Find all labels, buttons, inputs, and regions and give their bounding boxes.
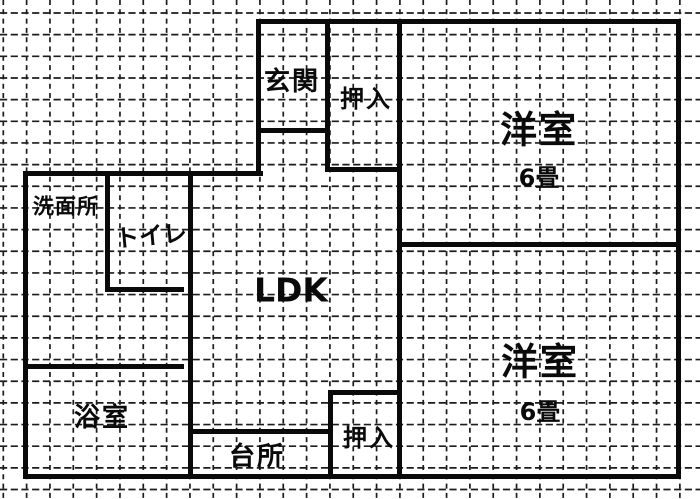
wall-oshiire-lower-top (328, 390, 402, 395)
room-label-kitchen: 台所 (229, 444, 285, 470)
wall-toilet-bottom (105, 287, 184, 292)
wall-oshiire-lower-left (328, 390, 333, 479)
room-label-genkan: 玄関 (264, 69, 320, 95)
wall-genkan-left (256, 19, 261, 176)
wall-genkan-oshiire-divider (325, 19, 330, 172)
wall-outer-bottom (23, 474, 681, 479)
wall-outer-right (676, 19, 681, 479)
wall-oshiire-upper-bottom (325, 167, 402, 172)
room-label-oshiire-lower: 押入 (343, 426, 395, 450)
wall-toilet-left (105, 171, 110, 292)
wall-western-rooms-divider (397, 242, 681, 247)
wall-genkan-bottom (256, 128, 330, 133)
wall-kitchen-top (188, 429, 333, 434)
wall-washroom-top (23, 171, 263, 176)
room-label-ldk: LDK (254, 274, 328, 307)
room-label-western-upper: 洋室 (500, 112, 578, 149)
wall-bathroom-top (23, 364, 184, 369)
room-size-western-upper: 6畳 (519, 166, 560, 190)
wall-outer-top (256, 19, 681, 24)
room-size-western-lower: 6畳 (520, 400, 561, 424)
room-label-bathroom: 浴室 (74, 405, 130, 431)
wall-central-vertical (397, 19, 402, 479)
room-label-oshiire-upper: 押入 (340, 87, 392, 111)
floorplan-canvas: 玄関 押入 洋室 6畳 洗面所 トイレ LDK 浴室 台所 押入 洋室 6畳 (0, 0, 700, 499)
room-label-western-lower: 洋室 (501, 344, 579, 381)
room-label-washroom: 洗面所 (33, 197, 99, 218)
room-label-toilet: トイレ (114, 221, 188, 251)
wall-outer-left (23, 171, 28, 479)
